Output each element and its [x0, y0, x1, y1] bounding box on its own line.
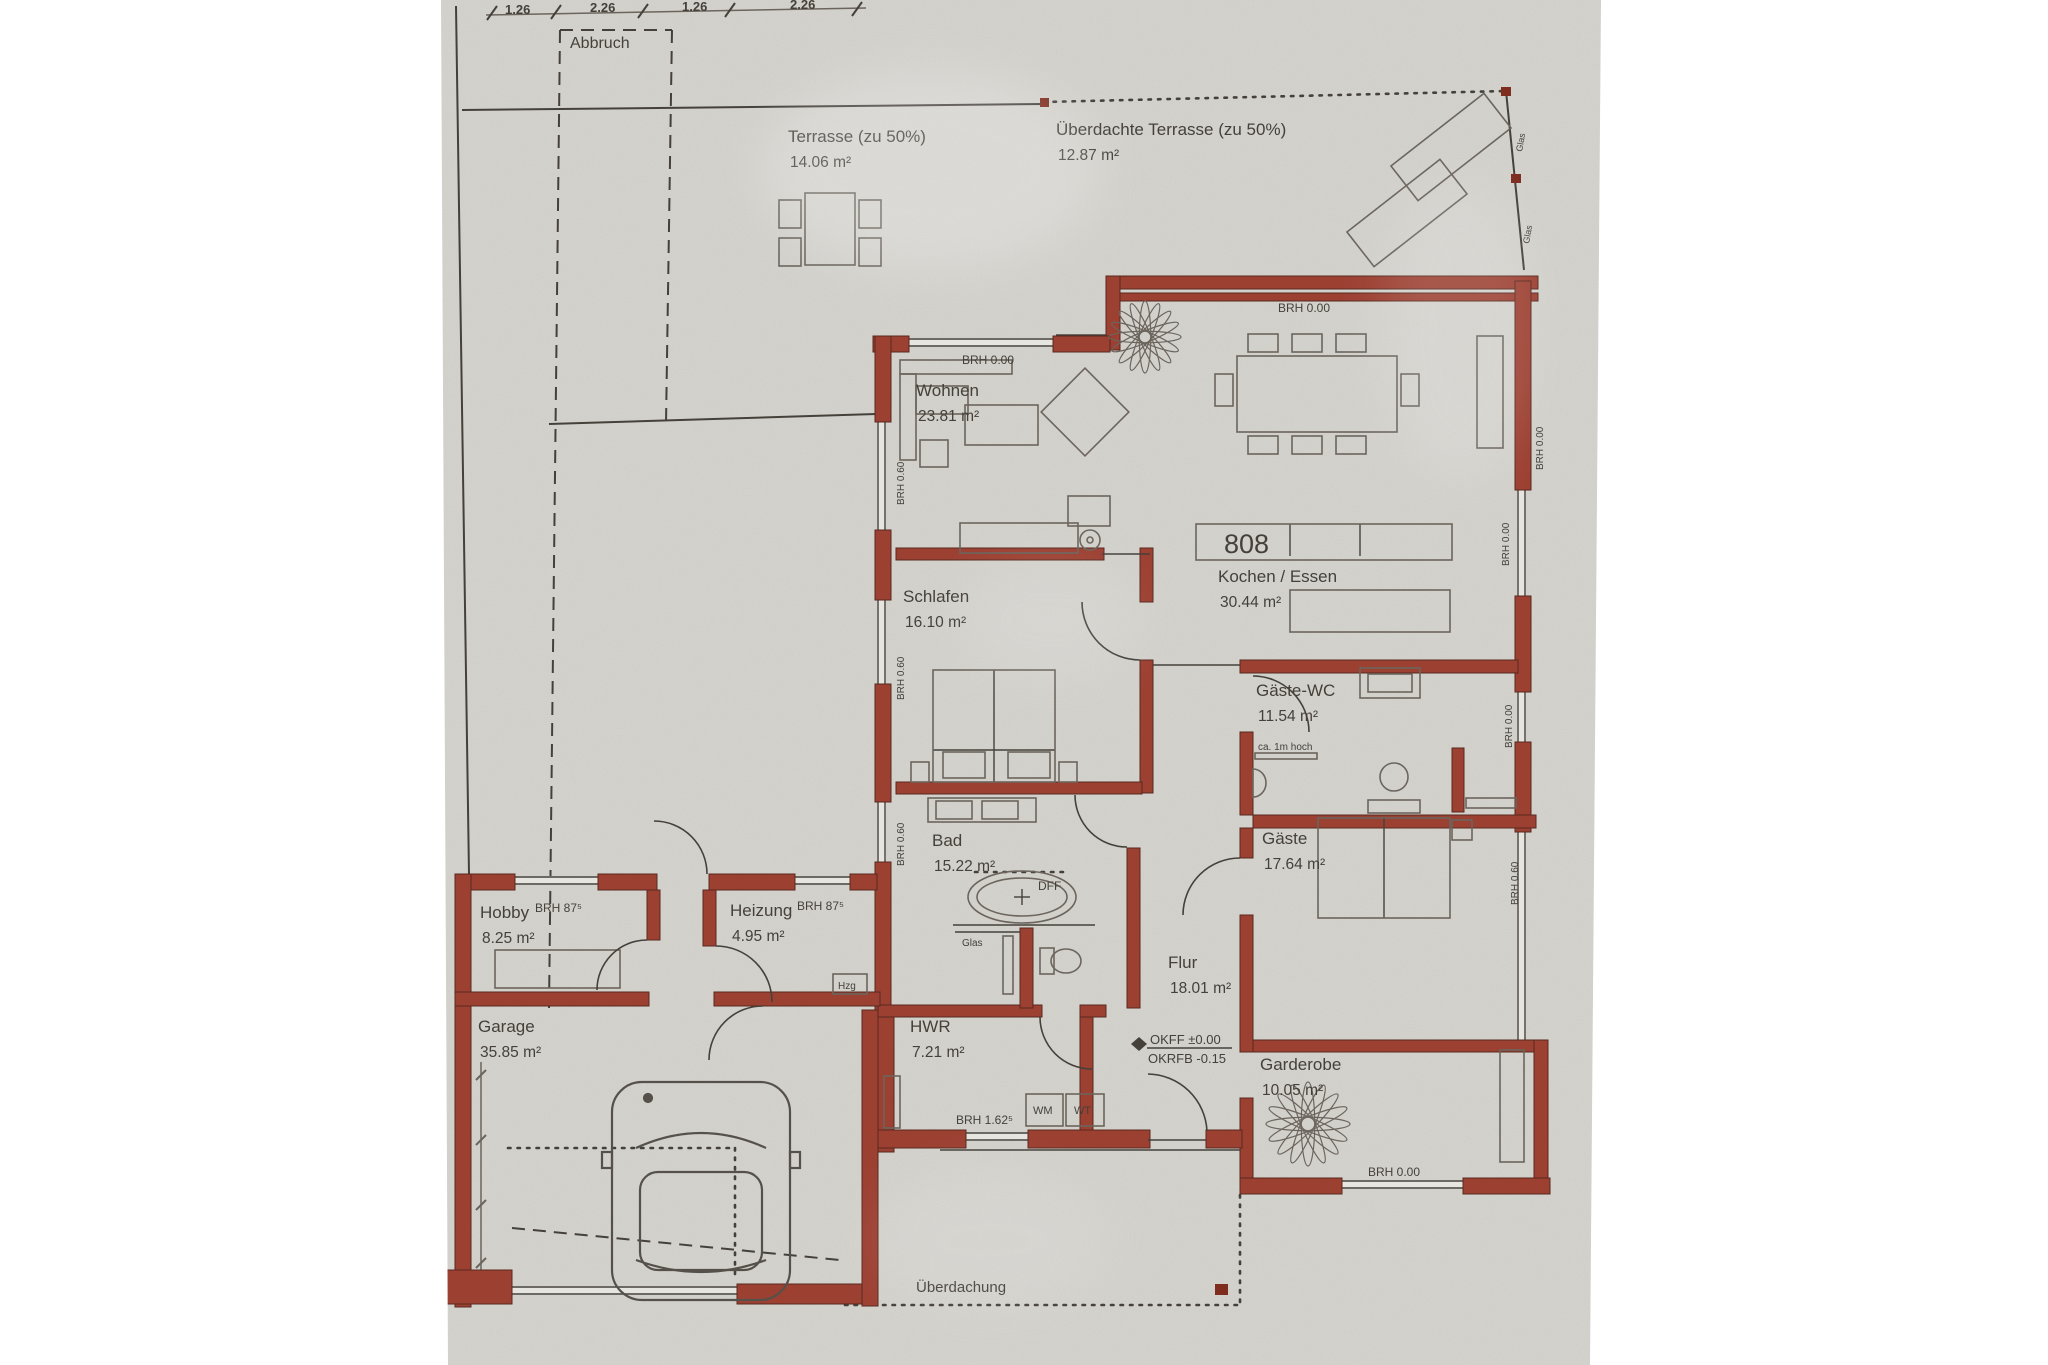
wall-segment: [1452, 748, 1464, 812]
floor-plan-svg: 1.262.261.262.26Terrasse (zu 50%)14.06 m…: [0, 0, 2048, 1365]
dimension-label: 1.26: [682, 0, 707, 14]
annotation-label: BRH 0.00: [1278, 301, 1330, 315]
annotation-label: BRH 87⁵: [797, 899, 844, 913]
wall-segment: [875, 336, 891, 422]
room-label-wohnen: Wohnen: [916, 381, 979, 400]
floor-plan-photo: 1.262.261.262.26Terrasse (zu 50%)14.06 m…: [0, 0, 2048, 1365]
wall-segment: [1240, 732, 1253, 815]
crease-highlight: [870, 1170, 1110, 1310]
room-area-kochen-essen: 30.44 m²: [1220, 594, 1281, 611]
room-area-heizung: 4.95 m²: [732, 928, 785, 945]
wall-segment: [1515, 596, 1531, 692]
room-label-heizung: Heizung: [730, 901, 792, 920]
room-label-garderobe: Garderobe: [1260, 1055, 1341, 1074]
room-area-gaeste-wc: 11.54 m²: [1258, 708, 1318, 725]
room-area-schlafen: 16.10 m²: [905, 614, 966, 631]
annotation-label: Abbruch: [570, 35, 630, 52]
room-area-garage: 35.85 m²: [480, 1044, 541, 1061]
site-marker: [1215, 1284, 1228, 1295]
room-area-wohnen: 23.81 m²: [918, 408, 979, 425]
room-label-garage: Garage: [478, 1017, 535, 1036]
annotation-label: WT: [1074, 1105, 1091, 1117]
site-marker: [1511, 174, 1521, 183]
wall-segment: [878, 1130, 966, 1148]
wall-segment: [878, 1005, 1042, 1017]
wall-segment: [896, 782, 1142, 794]
room-area-gaeste: 17.64 m²: [1264, 856, 1325, 873]
annotation-label: ca. 1m hoch: [1258, 742, 1312, 753]
annotation-label: BRH 0.60: [896, 822, 907, 866]
annotation-label: BRH 0.00: [962, 353, 1014, 367]
room-label-flur: Flur: [1168, 953, 1198, 972]
wall-segment: [1028, 1130, 1150, 1148]
annotation-label: BRH 0.00: [1504, 704, 1515, 748]
annotation-label: BRH 0.00: [1535, 426, 1546, 470]
annotation-label: BRH 1.62⁵: [956, 1113, 1013, 1127]
room-area-hobby: 8.25 m²: [482, 930, 535, 947]
annotation-label: OKRFB -0.15: [1148, 1051, 1226, 1066]
site-marker: [1501, 87, 1511, 96]
wall-segment: [1127, 848, 1140, 1008]
wall-segment: [1240, 915, 1253, 1052]
plan-drawing: 1.262.261.262.26Terrasse (zu 50%)14.06 m…: [441, 0, 1601, 1365]
annotation-label: DFF: [1038, 879, 1061, 893]
room-area-hwr: 7.21 m²: [912, 1044, 965, 1061]
room-label-gaeste: Gäste: [1262, 829, 1307, 848]
wall-segment: [703, 890, 716, 946]
wall-segment: [850, 874, 877, 890]
wall-segment: [1253, 815, 1536, 828]
annotation-label: BRH 0.00: [1368, 1165, 1420, 1179]
room-label-kochen-essen: Kochen / Essen: [1218, 567, 1337, 586]
wall-segment: [1140, 660, 1153, 793]
annotation-label: OKFF ±0.00: [1150, 1032, 1221, 1047]
wall-segment: [1240, 660, 1518, 673]
room-area-garderobe: 10.05 m²: [1262, 1082, 1323, 1099]
annotation-label: Glas: [962, 938, 983, 949]
wall-segment: [1463, 1178, 1550, 1194]
wall-segment: [647, 890, 660, 940]
room-label-hwr: HWR: [910, 1017, 951, 1036]
wall-segment: [875, 684, 891, 802]
wall-segment: [1140, 548, 1153, 602]
annotation-label: BRH 0.60: [1510, 861, 1521, 905]
room-area-flur: 18.01 m²: [1170, 980, 1231, 997]
dimension-label: 2.26: [590, 0, 615, 15]
crease-highlight: [1380, 180, 1540, 480]
annotation-label: WM: [1033, 1105, 1053, 1117]
wall-segment: [1020, 928, 1033, 1008]
wall-segment: [709, 874, 795, 890]
annotation-label: Hzg: [838, 981, 856, 992]
dimension-label: 2.26: [790, 0, 815, 12]
wall-segment: [455, 874, 471, 1307]
wall-segment: [1206, 1130, 1242, 1148]
wall-segment: [1080, 1005, 1106, 1017]
wall-segment: [1240, 828, 1253, 858]
room-label-ueberdachte-terrasse: Überdachte Terrasse (zu 50%): [1056, 120, 1286, 139]
wall-segment: [1240, 1178, 1342, 1194]
annotation-label: 808: [1224, 529, 1269, 559]
room-label-bad: Bad: [932, 831, 962, 850]
crease-highlight: [960, 560, 1140, 680]
annotation-label: BRH 87⁵: [535, 901, 582, 915]
room-label-hobby: Hobby: [480, 903, 530, 922]
wall-segment: [598, 874, 657, 890]
wall-segment: [1053, 336, 1110, 352]
wall-segment: [1534, 1040, 1548, 1192]
wall-segment: [862, 1010, 878, 1306]
room-area-bad: 15.22 m²: [934, 858, 995, 875]
crease-highlight: [760, 70, 1100, 270]
annotation-label: BRH 0.00: [1501, 522, 1512, 566]
wall-segment: [447, 1270, 512, 1304]
wall-segment: [455, 992, 649, 1006]
annotation-label: BRH 0.60: [896, 656, 907, 700]
annotation-label: BRH 0.60: [896, 461, 907, 505]
room-label-gaeste-wc: Gäste-WC: [1256, 681, 1335, 700]
dimension-label: 1.26: [505, 2, 530, 17]
wall-segment: [896, 548, 1104, 560]
room-label-schlafen: Schlafen: [903, 587, 969, 606]
wall-segment: [875, 530, 891, 600]
